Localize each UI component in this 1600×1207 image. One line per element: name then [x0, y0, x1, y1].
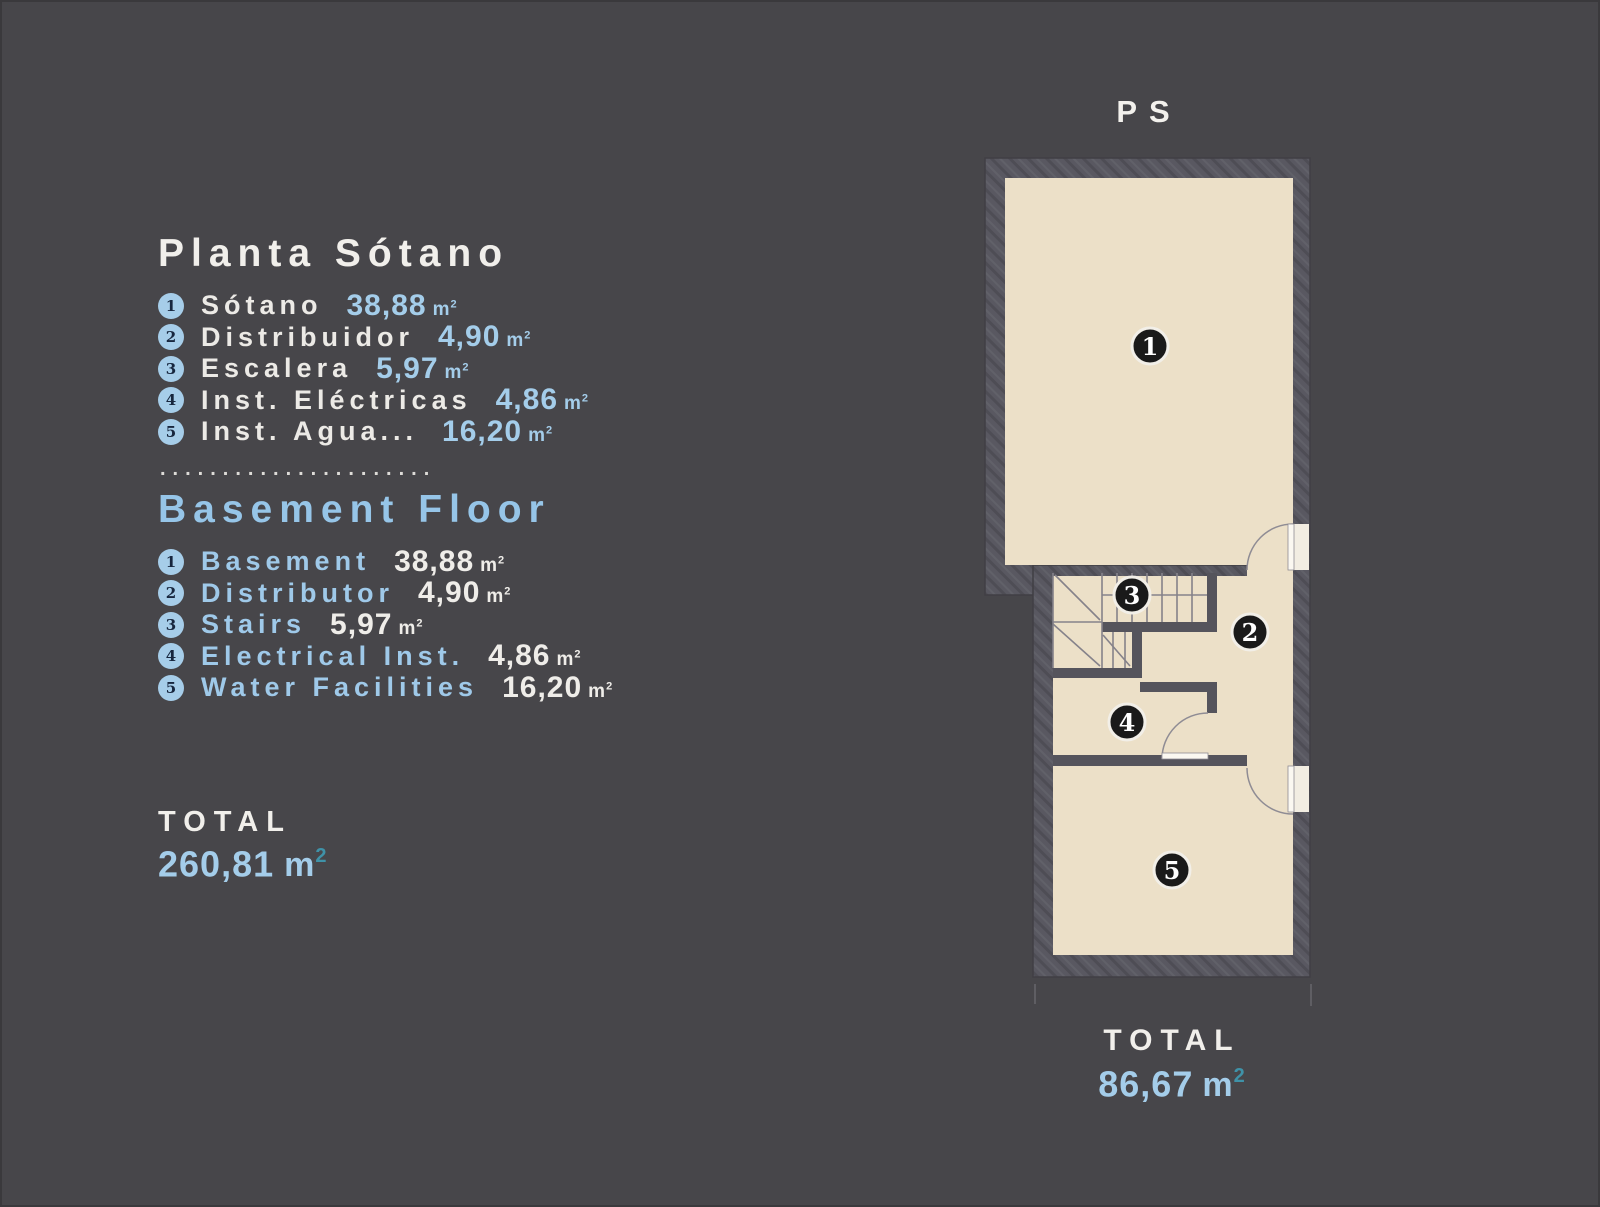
item-number-badge: 5 — [158, 419, 184, 445]
room-label: Basement — [201, 546, 370, 577]
room-1-floor — [1005, 178, 1293, 565]
room-label: Distributor — [201, 578, 394, 609]
room-label: Inst. Eléctricas — [201, 385, 472, 416]
item-number-badge: 1 — [158, 293, 184, 319]
room-label: Inst. Agua... — [201, 416, 418, 447]
plan-total-label: TOTAL — [1033, 1024, 1311, 1058]
list-item: 4 Inst. Eléctricas 4,86m2 — [158, 387, 589, 414]
unit-m2: m2 — [588, 681, 613, 702]
dotted-separator: ...................... — [160, 456, 436, 483]
room-area-value: 16,20m2 — [442, 415, 553, 449]
door-leaf-room5 — [1288, 766, 1294, 812]
english-title: Basement Floor — [158, 488, 551, 532]
total-label: TOTAL — [158, 806, 292, 838]
room-area-value: 5,97m2 — [376, 352, 469, 386]
svg-text:5: 5 — [1164, 856, 1181, 885]
item-number-badge: 4 — [158, 387, 184, 413]
room-label: Electrical Inst. — [201, 641, 464, 672]
room-area-value: 4,90m2 — [438, 320, 531, 354]
list-item: 2 Distributor 4,90m2 — [158, 580, 613, 607]
room-area-value: 4,90m2 — [418, 576, 511, 610]
list-item: 1 Sótano 38,88m2 — [158, 292, 589, 319]
svg-text:3: 3 — [1124, 581, 1141, 610]
list-item: 3 Stairs 5,97m2 — [158, 611, 613, 638]
english-legend-list: 1 Basement 38,88m2 2 Distributor 4,90m2 … — [158, 548, 613, 706]
spanish-legend-list: 1 Sótano 38,88m2 2 Distribuidor 4,90m2 3… — [158, 292, 589, 450]
svg-text:4: 4 — [1119, 708, 1136, 737]
list-item: 1 Basement 38,88m2 — [158, 548, 613, 575]
list-item: 2 Distribuidor 4,90m2 — [158, 324, 589, 351]
svg-text:2: 2 — [1242, 618, 1259, 647]
room-marker-5: 5 — [1154, 852, 1190, 888]
spanish-title: Planta Sótano — [158, 232, 509, 276]
room-label: Water Facilities — [201, 672, 478, 703]
room-area-value: 16,20m2 — [502, 671, 613, 705]
unit-m2: m2 — [433, 299, 458, 320]
unit-m2: m2 — [564, 393, 589, 414]
door-leaf-room4 — [1162, 753, 1208, 759]
item-number-badge: 3 — [158, 356, 184, 382]
room-label: Sótano — [201, 290, 323, 321]
list-item: 5 Inst. Agua... 16,20m2 — [158, 418, 589, 445]
door-leaf-room1 — [1288, 524, 1294, 570]
room-marker-2: 2 — [1232, 614, 1268, 650]
plan-total-value: 86,67m2 — [1033, 1058, 1311, 1105]
unit-m2: m2 — [486, 586, 511, 607]
item-number-badge: 1 — [158, 549, 184, 575]
item-number-badge: 2 — [158, 324, 184, 350]
dimension-ticks — [1035, 984, 1311, 1006]
room-area-value: 38,88m2 — [347, 289, 458, 323]
svg-text:1: 1 — [1142, 332, 1159, 361]
room-area-value: 38,88m2 — [394, 545, 505, 579]
room-marker-3: 3 — [1114, 577, 1150, 613]
door-opening-top — [1247, 565, 1293, 577]
unit-m2: m2 — [398, 618, 423, 639]
basement-floor-plan: 1 2 3 4 5 — [950, 140, 1330, 1020]
room-area-value: 5,97m2 — [330, 608, 423, 642]
item-number-badge: 3 — [158, 612, 184, 638]
room-area-value: 4,86m2 — [496, 383, 589, 417]
item-number-badge: 4 — [158, 643, 184, 669]
item-number-badge: 5 — [158, 675, 184, 701]
list-item: 3 Escalera 5,97m2 — [158, 355, 589, 382]
room-label: Distribuidor — [201, 322, 414, 353]
unit-m2: m2 — [1202, 1066, 1245, 1104]
unit-m2: m2 — [556, 649, 581, 670]
room-marker-4: 4 — [1109, 704, 1145, 740]
room-label: Escalera — [201, 353, 352, 384]
total-value: 260,81m2 — [158, 838, 327, 885]
list-item: 4 Electrical Inst. 4,86m2 — [158, 643, 613, 670]
room-area-value: 4,86m2 — [488, 639, 581, 673]
room-marker-1: 1 — [1132, 328, 1168, 364]
room-label: Stairs — [201, 609, 306, 640]
list-item: 5 Water Facilities 16,20m2 — [158, 674, 613, 701]
plan-title: PS — [985, 94, 1313, 130]
floor-plan-page: { "colors": { "background": "#47464a", "… — [0, 0, 1600, 1207]
unit-m2: m2 — [445, 362, 470, 383]
unit-m2: m2 — [528, 425, 553, 446]
unit-m2: m2 — [284, 846, 327, 884]
unit-m2: m2 — [480, 555, 505, 576]
item-number-badge: 2 — [158, 580, 184, 606]
unit-m2: m2 — [506, 330, 531, 351]
